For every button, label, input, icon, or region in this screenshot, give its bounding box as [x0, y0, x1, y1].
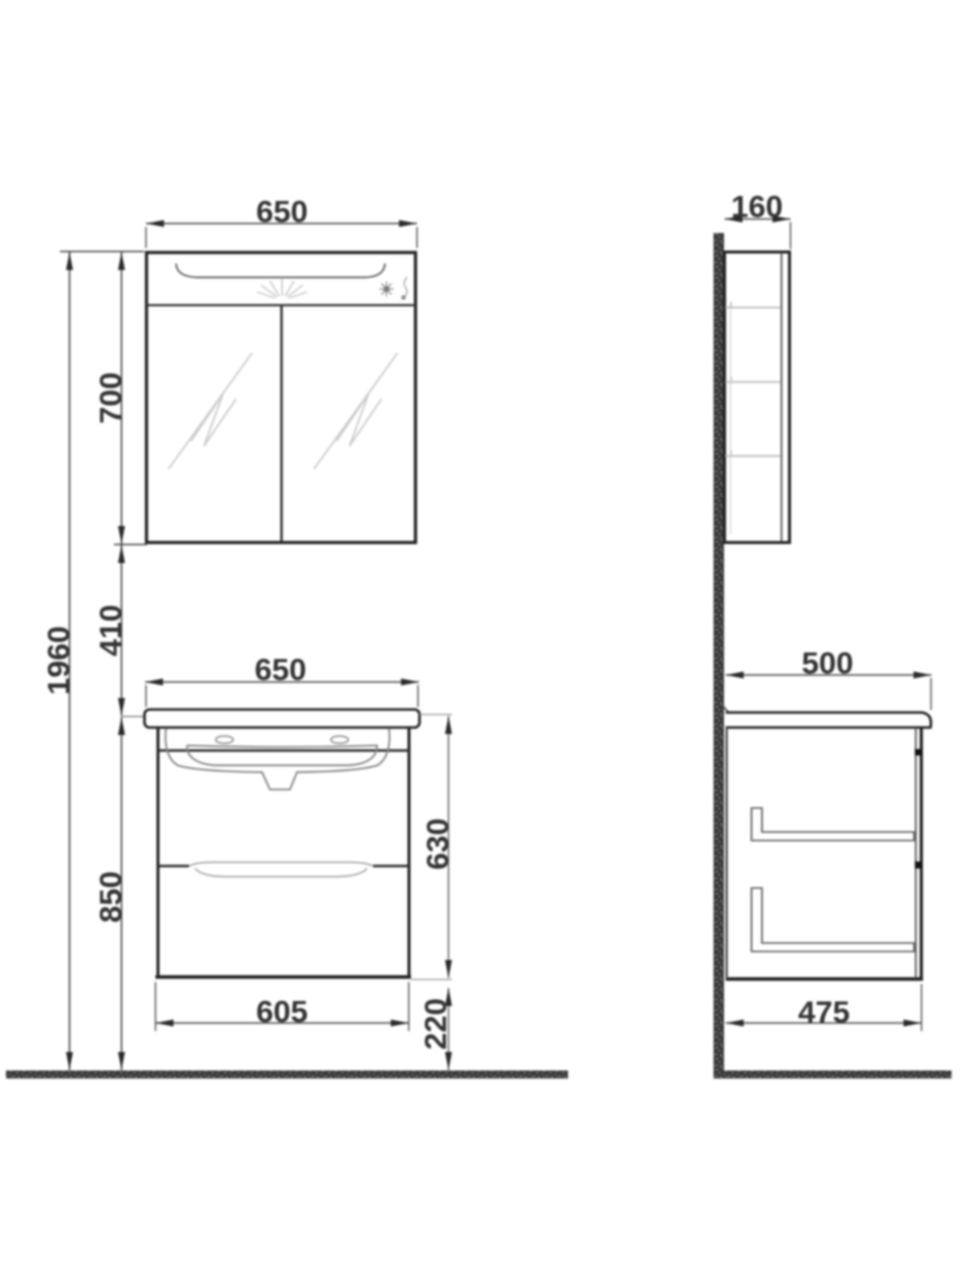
svg-text:160: 160 — [731, 189, 783, 224]
svg-text:500: 500 — [802, 646, 854, 681]
svg-text:220: 220 — [418, 998, 453, 1050]
svg-text:475: 475 — [798, 995, 850, 1030]
svg-text:650: 650 — [256, 194, 308, 229]
svg-text:850: 850 — [93, 871, 128, 923]
svg-text:605: 605 — [256, 994, 308, 1029]
svg-text:410: 410 — [93, 605, 128, 657]
svg-text:650: 650 — [255, 652, 307, 687]
svg-text:700: 700 — [93, 372, 128, 424]
svg-text:1960: 1960 — [41, 626, 76, 695]
svg-text:630: 630 — [420, 818, 455, 870]
